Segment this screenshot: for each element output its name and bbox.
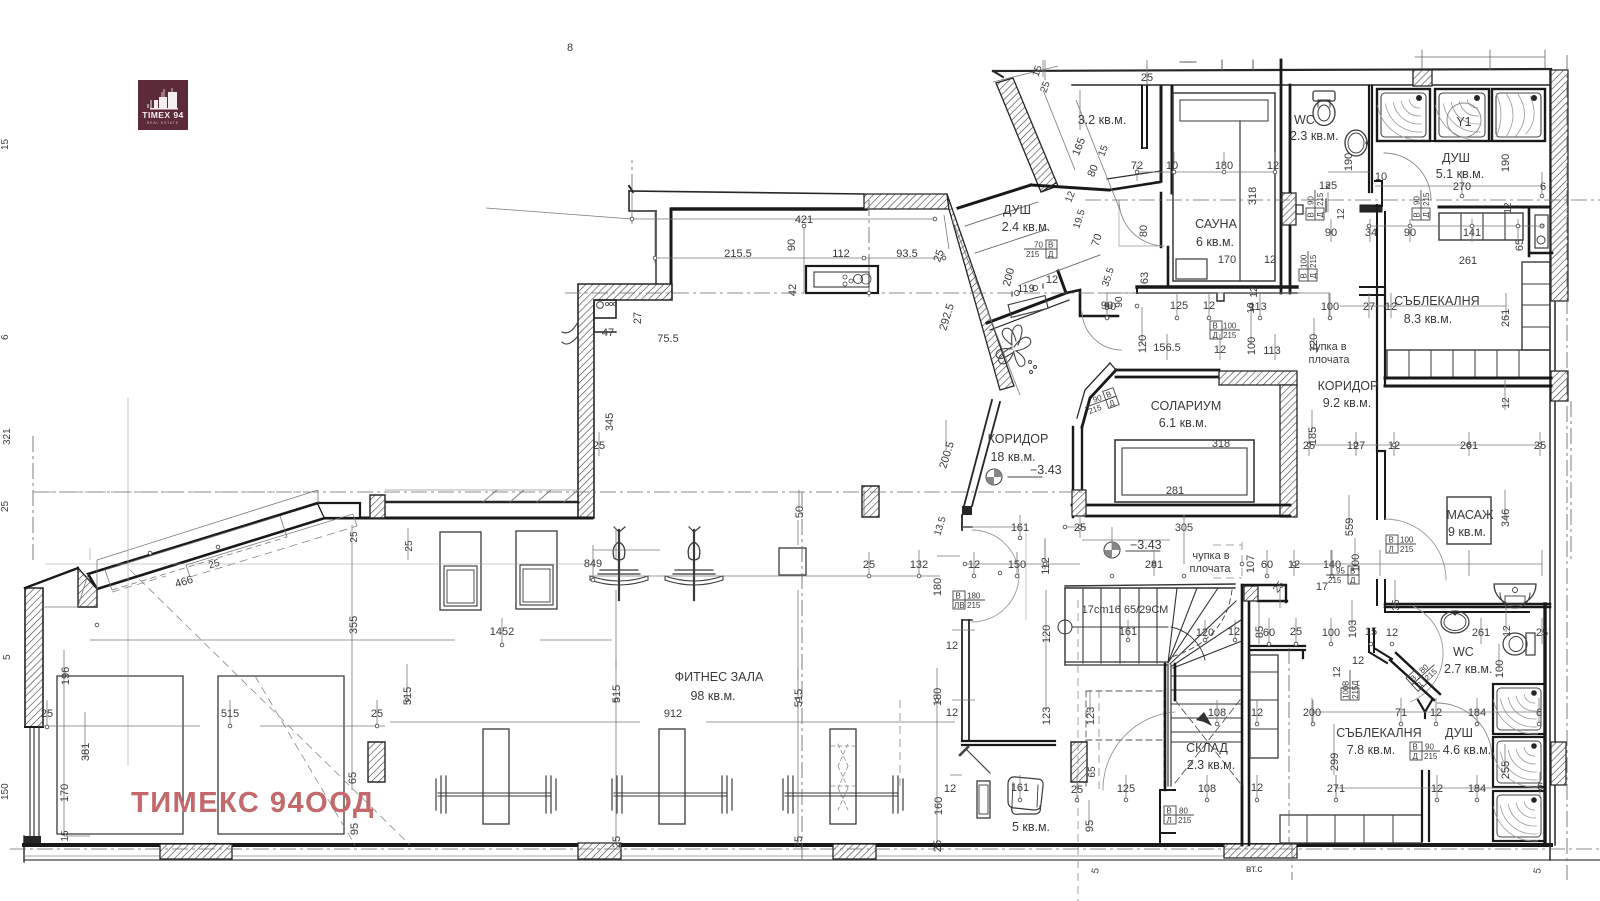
svg-text:170: 170 (59, 784, 71, 802)
svg-text:261: 261 (1472, 627, 1490, 639)
svg-text:25: 25 (1074, 522, 1086, 534)
svg-text:12: 12 (1388, 440, 1400, 452)
svg-text:12: 12 (944, 783, 956, 795)
svg-text:215: 215 (1309, 254, 1318, 268)
svg-text:плочата: плочата (1189, 563, 1231, 575)
svg-text:70: 70 (1034, 241, 1043, 250)
svg-text:261: 261 (1460, 440, 1478, 452)
svg-text:215: 215 (1026, 250, 1040, 259)
svg-text:12: 12 (1501, 397, 1512, 409)
svg-text:15: 15 (1365, 626, 1377, 638)
svg-text:12: 12 (1214, 344, 1226, 356)
svg-text:849: 849 (584, 558, 602, 570)
svg-text:2.4 кв.м.: 2.4 кв.м. (1002, 220, 1051, 234)
svg-text:ДУШ: ДУШ (1445, 726, 1473, 740)
svg-text:71: 71 (1395, 707, 1407, 719)
svg-text:Д: Д (1048, 250, 1054, 259)
svg-text:25: 25 (0, 500, 11, 512)
svg-text:421: 421 (795, 214, 813, 226)
svg-text:305: 305 (1175, 522, 1193, 534)
svg-text:12: 12 (1503, 202, 1514, 214)
svg-text:271: 271 (1327, 783, 1345, 795)
svg-text:12: 12 (1502, 625, 1513, 637)
svg-text:Л: Л (1389, 545, 1394, 554)
svg-text:261: 261 (1500, 309, 1512, 327)
svg-text:12: 12 (1249, 286, 1260, 298)
svg-text:10: 10 (1166, 160, 1178, 172)
svg-text:REAL ESTATE: REAL ESTATE (147, 121, 179, 125)
svg-text:103: 103 (1347, 620, 1359, 638)
svg-text:90: 90 (1114, 296, 1125, 308)
svg-text:125: 125 (1319, 180, 1337, 192)
svg-text:Л: Л (1167, 816, 1172, 825)
svg-text:25: 25 (1071, 784, 1083, 796)
svg-text:чупка в: чупка в (1192, 550, 1229, 562)
svg-text:25: 25 (863, 559, 875, 571)
svg-text:ДУШ: ДУШ (1442, 151, 1470, 165)
svg-text:27: 27 (1363, 301, 1375, 313)
svg-text:WC: WC (1294, 113, 1315, 127)
svg-text:100: 100 (1494, 660, 1506, 678)
svg-text:318: 318 (1247, 187, 1259, 205)
svg-text:75.5: 75.5 (657, 333, 678, 345)
svg-text:161: 161 (1119, 626, 1137, 638)
svg-text:25: 25 (932, 840, 944, 852)
svg-text:В: В (956, 592, 961, 601)
svg-text:25: 25 (593, 440, 605, 452)
svg-text:95: 95 (1336, 567, 1345, 576)
svg-text:120: 120 (1137, 335, 1149, 353)
svg-text:2.3 кв.м.: 2.3 кв.м. (1290, 129, 1339, 143)
svg-text:321: 321 (2, 428, 13, 445)
svg-text:180: 180 (932, 578, 944, 596)
svg-text:12: 12 (1385, 301, 1397, 313)
svg-text:9.2 кв.м.: 9.2 кв.м. (1323, 396, 1372, 410)
svg-text:160: 160 (933, 797, 945, 815)
svg-text:В: В (1413, 212, 1422, 217)
svg-text:9 кв.м.: 9 кв.м. (1448, 525, 1486, 539)
svg-text:В: В (1413, 743, 1418, 752)
svg-text:12: 12 (946, 707, 958, 719)
svg-text:100: 100 (1246, 337, 1258, 355)
svg-text:5: 5 (2, 654, 13, 660)
svg-text:12: 12 (1251, 782, 1263, 794)
svg-text:180: 180 (967, 592, 981, 601)
svg-text:107: 107 (1245, 555, 1257, 573)
svg-text:113: 113 (1263, 345, 1281, 357)
svg-text:вт.с: вт.с (1246, 864, 1262, 875)
svg-text:132: 132 (910, 559, 928, 571)
svg-text:215: 215 (967, 601, 981, 610)
svg-text:215.5: 215.5 (724, 248, 752, 260)
svg-text:108: 108 (1198, 783, 1216, 795)
svg-text:25: 25 (1536, 627, 1548, 639)
svg-text:215: 215 (1328, 576, 1342, 585)
svg-text:184: 184 (1468, 707, 1486, 719)
svg-text:12: 12 (1203, 300, 1215, 312)
svg-text:6 кв.м.: 6 кв.м. (1196, 235, 1234, 249)
svg-text:180: 180 (932, 688, 944, 706)
svg-text:100: 100 (1300, 254, 1309, 268)
svg-text:10: 10 (1246, 302, 1257, 314)
svg-text:281: 281 (1145, 559, 1163, 571)
svg-text:95: 95 (349, 823, 361, 835)
svg-text:515: 515 (402, 687, 414, 705)
svg-text:В: В (1389, 536, 1394, 545)
svg-text:12: 12 (1336, 208, 1347, 220)
svg-text:12: 12 (968, 559, 980, 571)
svg-text:СЪБЛЕКАЛНЯ: СЪБЛЕКАЛНЯ (1336, 726, 1421, 740)
svg-text:196: 196 (60, 667, 72, 685)
svg-text:СОЛАРИУМ: СОЛАРИУМ (1151, 399, 1222, 413)
svg-text:200: 200 (1303, 707, 1321, 719)
svg-text:6.1 кв.м.: 6.1 кв.м. (1159, 416, 1208, 430)
svg-text:215: 215 (1316, 192, 1325, 206)
svg-text:261: 261 (1459, 255, 1477, 267)
svg-text:12: 12 (1288, 559, 1300, 571)
svg-text:215: 215 (1422, 192, 1431, 206)
svg-text:6: 6 (1537, 781, 1543, 793)
svg-text:127: 127 (1347, 440, 1365, 452)
svg-text:60: 60 (1263, 627, 1275, 639)
svg-text:17: 17 (1316, 581, 1328, 593)
svg-text:80: 80 (1138, 225, 1150, 237)
svg-text:100: 100 (1400, 536, 1414, 545)
svg-text:12: 12 (1228, 626, 1240, 638)
svg-text:25: 25 (611, 836, 623, 848)
svg-text:17cm16 65/29СМ: 17cm16 65/29СМ (1082, 604, 1169, 616)
svg-text:100: 100 (1322, 627, 1340, 639)
svg-text:123: 123 (1085, 707, 1097, 725)
svg-text:12: 12 (1046, 274, 1058, 286)
svg-text:27: 27 (632, 312, 644, 324)
svg-text:8: 8 (567, 42, 573, 54)
svg-text:Д: Д (1351, 680, 1360, 686)
svg-text:25: 25 (1141, 72, 1153, 84)
svg-text:190: 190 (1343, 153, 1355, 171)
svg-text:215: 215 (1223, 331, 1237, 340)
svg-text:Y1: Y1 (1456, 115, 1471, 129)
svg-text:Д: Д (1316, 212, 1325, 218)
svg-text:90: 90 (1425, 743, 1434, 752)
svg-text:10: 10 (1375, 171, 1387, 183)
svg-text:93.5: 93.5 (896, 248, 917, 260)
svg-text:90: 90 (1307, 196, 1316, 205)
svg-text:Д: Д (1309, 273, 1318, 279)
svg-text:−3.43: −3.43 (1030, 463, 1062, 477)
svg-text:120: 120 (1041, 625, 1053, 643)
svg-text:299: 299 (1329, 753, 1341, 771)
svg-text:6: 6 (1540, 181, 1546, 193)
svg-text:18 кв.м.: 18 кв.м. (990, 450, 1035, 464)
svg-text:12: 12 (1386, 627, 1398, 639)
svg-text:515: 515 (793, 689, 805, 707)
svg-text:215: 215 (1178, 816, 1192, 825)
svg-text:3.2 кв.м.: 3.2 кв.м. (1078, 113, 1127, 127)
svg-text:150: 150 (1008, 559, 1026, 571)
svg-text:25: 25 (1303, 440, 1315, 452)
svg-text:12: 12 (1251, 707, 1263, 719)
svg-text:6: 6 (0, 334, 11, 340)
svg-text:90: 90 (1413, 196, 1422, 205)
svg-text:В: В (1342, 681, 1351, 686)
svg-text:СЪБЛЕКАЛНЯ: СЪБЛЕКАЛНЯ (1394, 294, 1479, 308)
svg-text:318: 318 (1212, 438, 1230, 450)
svg-text:15: 15 (0, 138, 11, 150)
svg-text:100: 100 (1223, 322, 1237, 331)
svg-text:5.1 кв.м.: 5.1 кв.м. (1436, 167, 1485, 181)
svg-text:12: 12 (1264, 254, 1276, 266)
svg-text:35: 35 (1391, 599, 1402, 611)
svg-text:ДУШ: ДУШ (1003, 203, 1031, 217)
svg-text:47: 47 (602, 327, 614, 339)
svg-text:63: 63 (1139, 272, 1151, 284)
svg-text:125: 125 (1170, 300, 1188, 312)
svg-text:25: 25 (371, 708, 383, 720)
svg-text:Д: Д (1213, 331, 1219, 340)
svg-text:215: 215 (1400, 545, 1414, 554)
svg-text:150: 150 (0, 783, 11, 800)
svg-text:TIMEX 94: TIMEX 94 (142, 110, 183, 120)
svg-text:В: В (1350, 567, 1355, 576)
svg-text:90: 90 (1404, 227, 1416, 239)
svg-text:108: 108 (1208, 707, 1226, 719)
svg-text:515: 515 (611, 685, 623, 703)
svg-text:95: 95 (1084, 820, 1096, 832)
svg-text:65: 65 (1087, 766, 1098, 778)
svg-text:381: 381 (80, 743, 92, 761)
svg-text:184: 184 (1468, 783, 1486, 795)
svg-text:515: 515 (221, 708, 239, 720)
svg-text:90: 90 (786, 239, 798, 251)
svg-text:плочата: плочата (1308, 354, 1350, 366)
svg-text:559: 559 (1344, 518, 1356, 536)
svg-text:−3.43: −3.43 (1130, 538, 1162, 552)
svg-text:170: 170 (1218, 254, 1236, 266)
svg-text:В: В (1300, 273, 1309, 278)
svg-text:25: 25 (41, 708, 53, 720)
svg-text:80: 80 (1179, 807, 1188, 816)
svg-text:98 кв.м.: 98 кв.м. (690, 689, 735, 703)
svg-text:112: 112 (1040, 557, 1052, 575)
svg-text:12: 12 (1332, 666, 1343, 678)
svg-text:2.7 кв.м.: 2.7 кв.м. (1444, 662, 1493, 676)
svg-text:60: 60 (1261, 559, 1273, 571)
svg-text:8.3 кв.м.: 8.3 кв.м. (1404, 312, 1453, 326)
svg-text:Д: Д (1422, 212, 1431, 218)
svg-text:255: 255 (1500, 761, 1512, 779)
svg-text:180: 180 (1215, 160, 1233, 172)
svg-text:345: 345 (604, 413, 616, 431)
svg-text:7.8 кв.м.: 7.8 кв.м. (1347, 743, 1396, 757)
svg-text:25: 25 (1534, 440, 1546, 452)
svg-text:ФИТНЕС ЗАЛА: ФИТНЕС ЗАЛА (675, 670, 764, 684)
svg-text:215: 215 (1424, 752, 1438, 761)
svg-text:МАСАЖ: МАСАЖ (1446, 508, 1494, 522)
svg-text:100: 100 (1321, 301, 1339, 313)
svg-text:12: 12 (1352, 655, 1364, 667)
svg-text:346: 346 (1500, 509, 1512, 527)
svg-text:1452: 1452 (490, 626, 514, 638)
svg-text:34: 34 (1365, 227, 1377, 239)
svg-text:САУНА: САУНА (1195, 217, 1238, 231)
svg-text:90: 90 (1325, 227, 1337, 239)
svg-text:355: 355 (348, 616, 360, 634)
svg-text:72: 72 (1131, 160, 1143, 172)
svg-text:ТИМЕКС 94ООД: ТИМЕКС 94ООД (131, 787, 375, 819)
svg-text:Д: Д (1350, 576, 1356, 585)
svg-text:161: 161 (1011, 782, 1029, 794)
svg-text:42: 42 (787, 284, 799, 296)
svg-text:25: 25 (793, 836, 805, 848)
svg-text:190: 190 (1500, 154, 1512, 172)
svg-text:120: 120 (1196, 627, 1214, 639)
svg-text:4.6 кв.м.: 4.6 кв.м. (1443, 743, 1492, 757)
svg-text:12: 12 (1431, 783, 1443, 795)
svg-text:2.3 кв.м.: 2.3 кв.м. (1187, 758, 1236, 772)
svg-text:125: 125 (1117, 783, 1135, 795)
svg-text:25: 25 (404, 540, 415, 552)
svg-text:270: 270 (1453, 181, 1471, 193)
svg-text:В: В (1307, 212, 1316, 217)
svg-text:6: 6 (1536, 707, 1542, 719)
svg-text:141: 141 (1463, 227, 1481, 239)
svg-text:5 кв.м.: 5 кв.м. (1012, 820, 1050, 834)
svg-text:В: В (1048, 241, 1053, 250)
svg-text:25: 25 (349, 531, 360, 543)
svg-text:123: 123 (1041, 707, 1053, 725)
svg-text:Д: Д (1413, 752, 1419, 761)
svg-text:90: 90 (1101, 300, 1113, 312)
svg-text:12: 12 (1267, 160, 1279, 172)
svg-text:12: 12 (946, 640, 958, 652)
svg-text:161: 161 (1011, 522, 1029, 534)
svg-text:WC: WC (1453, 645, 1474, 659)
svg-text:12: 12 (1430, 707, 1442, 719)
svg-text:25: 25 (1290, 626, 1302, 638)
svg-text:ЛВ: ЛВ (954, 601, 965, 610)
svg-text:СКЛАД: СКЛАД (1186, 741, 1228, 755)
svg-text:50: 50 (794, 506, 806, 518)
svg-text:100: 100 (1342, 685, 1351, 699)
svg-text:В: В (1213, 322, 1218, 331)
svg-text:КОРИДОР: КОРИДОР (1318, 379, 1379, 393)
svg-text:912: 912 (664, 708, 682, 720)
svg-text:281: 281 (1166, 485, 1184, 497)
svg-text:120: 120 (1308, 334, 1320, 352)
svg-text:15: 15 (60, 830, 71, 842)
svg-text:119: 119 (1017, 283, 1035, 295)
svg-text:215: 215 (1351, 685, 1360, 699)
svg-text:В: В (1167, 807, 1172, 816)
svg-text:112: 112 (832, 248, 850, 260)
svg-text:156.5: 156.5 (1153, 342, 1181, 354)
svg-text:65: 65 (347, 772, 359, 784)
svg-text:КОРИДОР: КОРИДОР (988, 432, 1049, 446)
svg-text:65: 65 (1514, 239, 1526, 251)
